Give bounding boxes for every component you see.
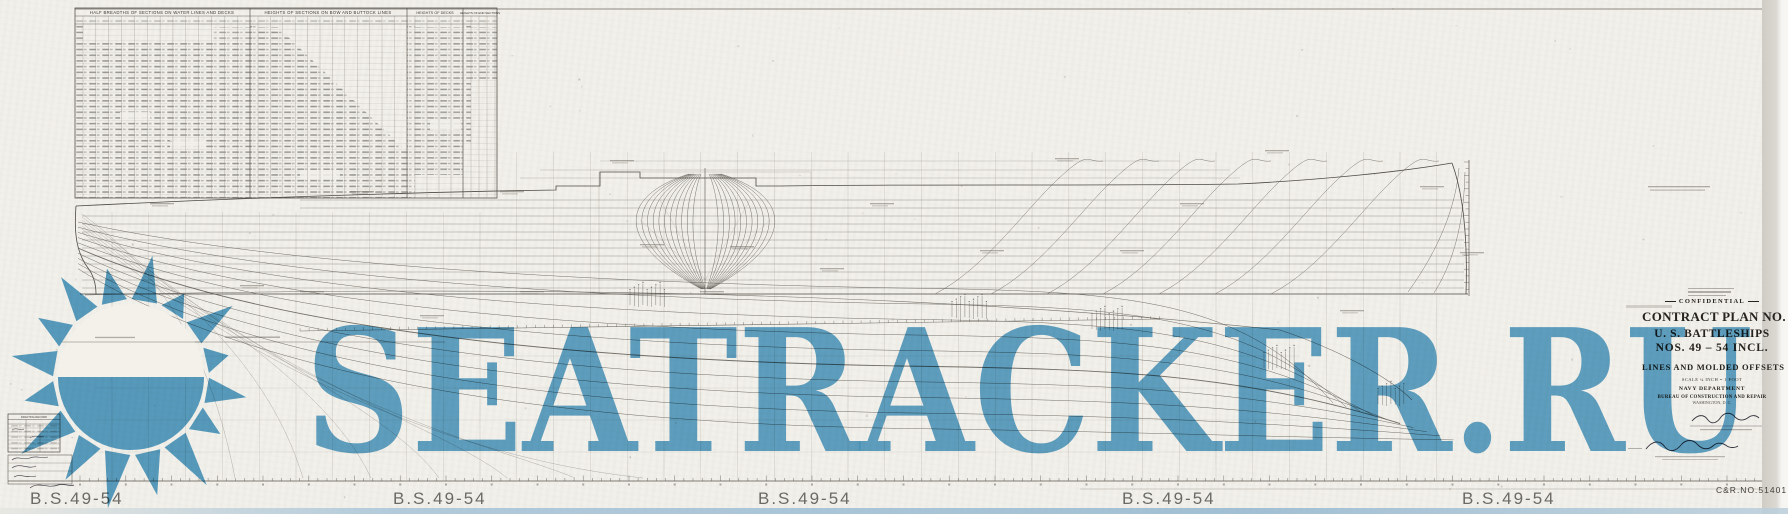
watermark: SEATRACKER.RU: [0, 0, 1788, 514]
watermark-text: SEATRACKER.RU: [305, 292, 1753, 492]
scanned-lines-plan-sheet: HALF BREADTHS OF SECTIONS ON WATER LINES…: [0, 0, 1788, 514]
